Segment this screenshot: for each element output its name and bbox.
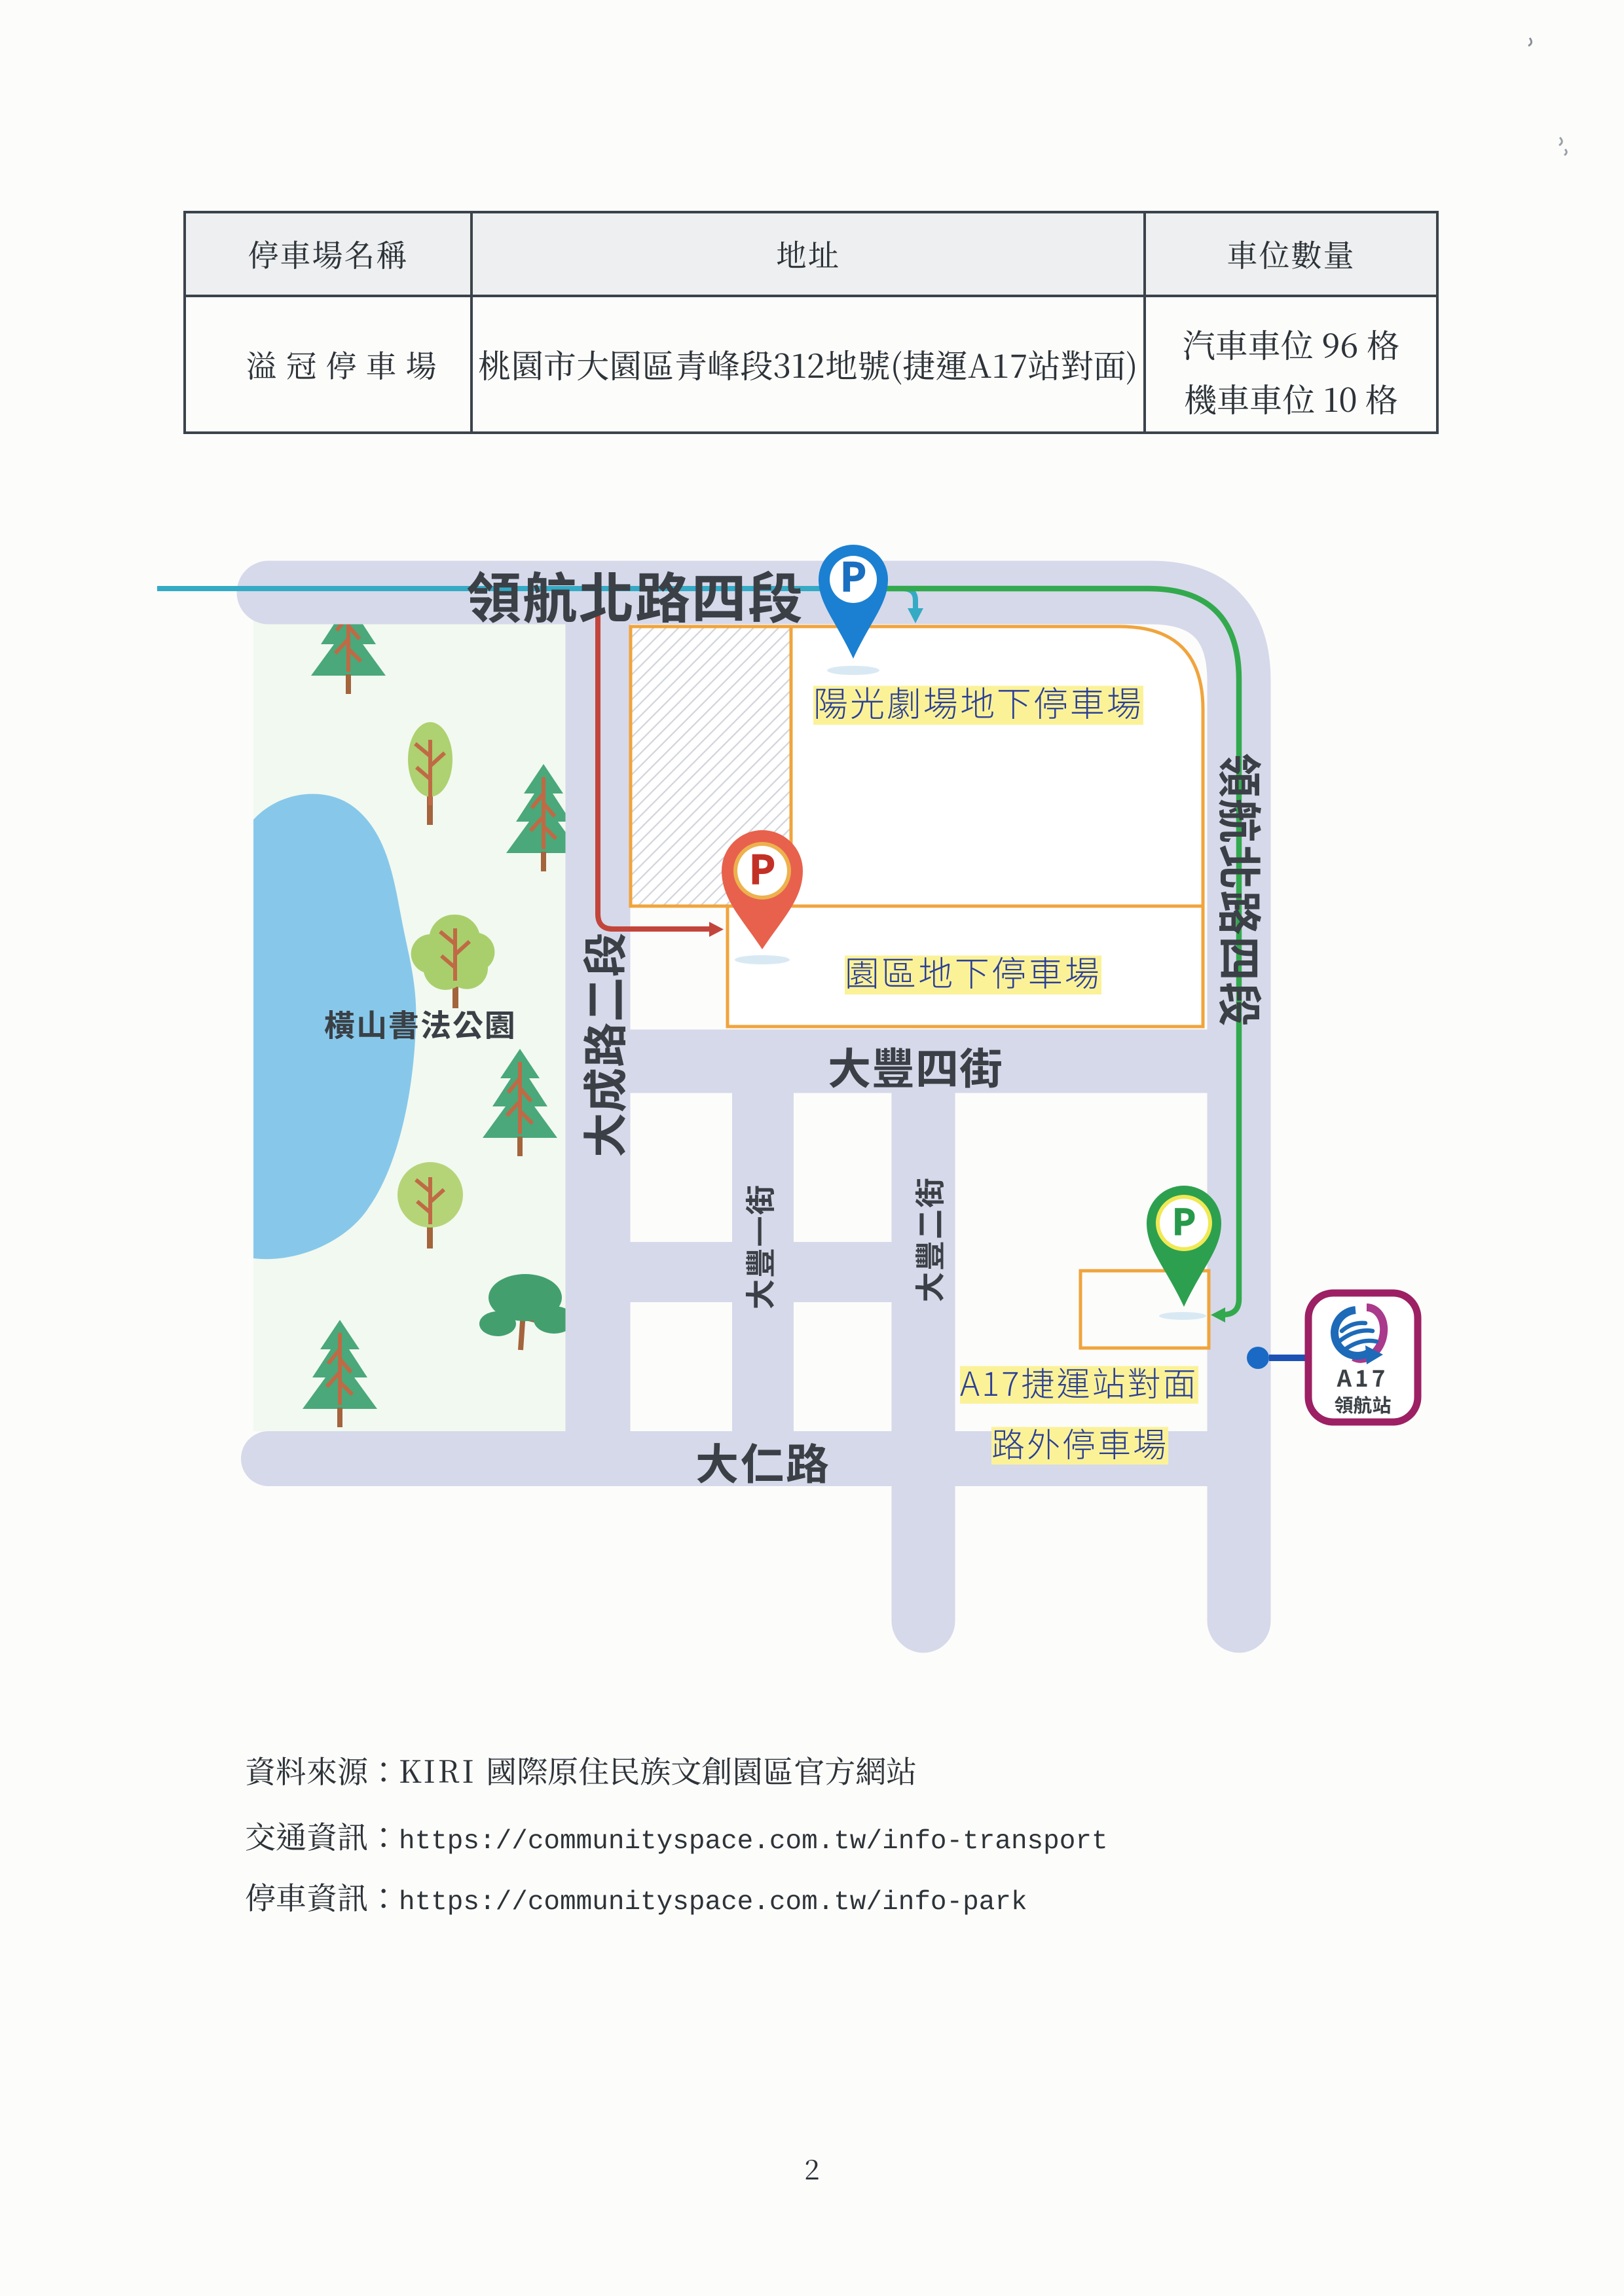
svg-text:P: P: [1172, 1194, 1196, 1245]
svg-text:A17: A17: [1337, 1360, 1389, 1394]
svg-text:P: P: [749, 839, 775, 896]
svg-text:P: P: [840, 546, 866, 603]
svg-text:領航站: 領航站: [1334, 1391, 1391, 1418]
